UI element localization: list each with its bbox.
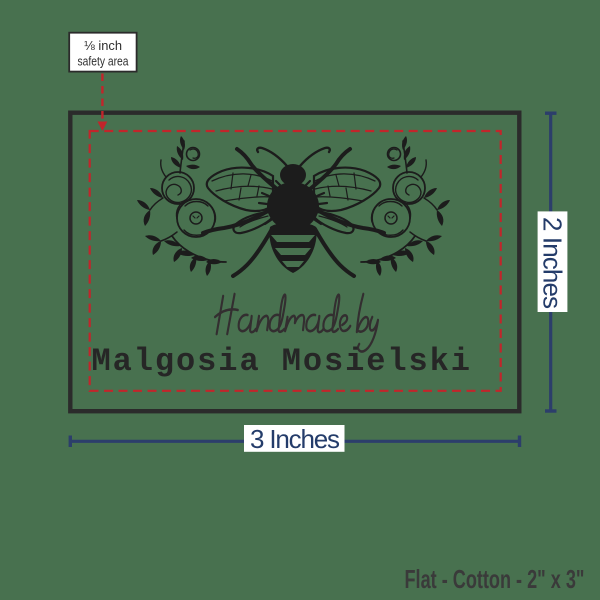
svg-text:⅛ inch: ⅛ inch (84, 38, 122, 53)
svg-text:Malgosia Mosielski: Malgosia Mosielski (92, 343, 471, 380)
svg-text:safety area: safety area (78, 54, 130, 69)
svg-text:3 Inches: 3 Inches (250, 424, 340, 454)
svg-text:Flat - Cotton - 2" x 3": Flat - Cotton - 2" x 3" (405, 564, 585, 594)
svg-text:2 Inches: 2 Inches (538, 217, 568, 309)
